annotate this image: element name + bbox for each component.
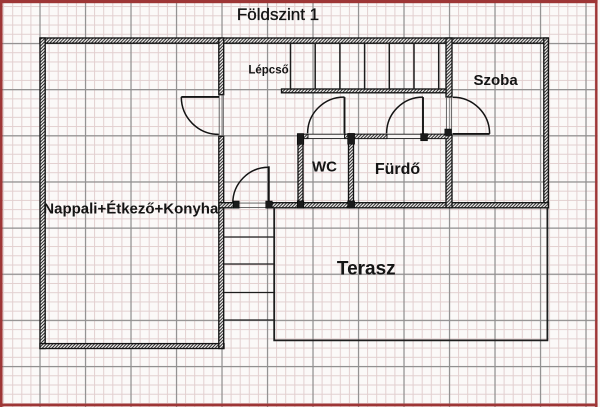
svg-text:Fürdő: Fürdő	[375, 161, 421, 178]
svg-text:Terasz: Terasz	[337, 258, 396, 279]
svg-text:WC: WC	[312, 158, 337, 175]
svg-text:Lépcső: Lépcső	[248, 65, 288, 77]
svg-text:Földszint 1: Földszint 1	[237, 5, 319, 24]
svg-text:Nappali+Étkező+Konyha: Nappali+Étkező+Konyha	[43, 201, 219, 218]
svg-text:Szoba: Szoba	[474, 72, 519, 89]
